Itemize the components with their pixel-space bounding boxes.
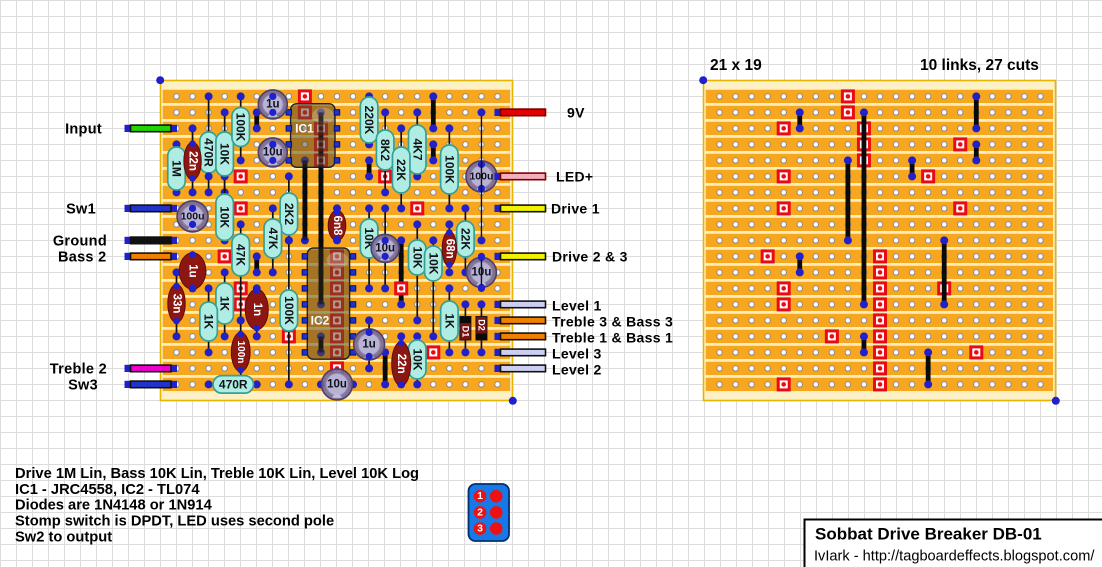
svg-text:22n: 22n: [395, 354, 407, 374]
svg-text:10u: 10u: [375, 242, 395, 254]
svg-text:IC2: IC2: [311, 314, 330, 328]
svg-text:LED+: LED+: [556, 168, 593, 184]
svg-text:D1: D1: [460, 326, 470, 338]
svg-text:1n: 1n: [251, 303, 263, 316]
svg-text:4K7: 4K7: [410, 138, 424, 160]
svg-text:10u: 10u: [263, 146, 283, 158]
svg-text:2: 2: [477, 506, 483, 518]
svg-text:Sw3: Sw3: [68, 377, 98, 393]
svg-text:22n: 22n: [187, 151, 199, 171]
svg-text:Ground: Ground: [53, 233, 107, 249]
svg-text:Sw1: Sw1: [66, 201, 96, 217]
svg-text:100K: 100K: [282, 296, 296, 325]
svg-text:Input: Input: [65, 121, 102, 137]
svg-text:33n: 33n: [171, 294, 183, 314]
svg-text:D2: D2: [476, 319, 486, 331]
svg-text:1u: 1u: [187, 264, 199, 277]
svg-text:Drive 1: Drive 1: [551, 200, 600, 216]
svg-text:Sw2 to output: Sw2 to output: [15, 529, 112, 545]
svg-text:10K: 10K: [410, 246, 424, 268]
svg-text:100K: 100K: [442, 155, 456, 184]
svg-text:6n8: 6n8: [331, 216, 343, 236]
svg-text:68n: 68n: [443, 239, 455, 259]
svg-text:220K: 220K: [362, 106, 376, 135]
svg-text:Treble 3 & Bass 3: Treble 3 & Bass 3: [552, 313, 673, 329]
svg-text:470R: 470R: [219, 377, 248, 391]
svg-text:IC1 - JRC4558, IC2 - TL074: IC1 - JRC4558, IC2 - TL074: [15, 482, 200, 498]
svg-text:Stomp switch is DPDT, LED uses: Stomp switch is DPDT, LED uses second po…: [15, 513, 334, 529]
svg-text:3: 3: [477, 523, 483, 535]
svg-text:22K: 22K: [458, 228, 472, 250]
svg-text:10u: 10u: [327, 378, 347, 390]
svg-text:9V: 9V: [567, 104, 585, 120]
svg-text:1u: 1u: [362, 338, 375, 350]
svg-text:470R: 470R: [202, 138, 216, 167]
svg-text:10K: 10K: [410, 348, 424, 370]
svg-text:10K: 10K: [218, 143, 232, 165]
svg-text:1u: 1u: [266, 98, 279, 110]
svg-text:Treble 2: Treble 2: [50, 361, 107, 377]
svg-text:10K: 10K: [426, 252, 440, 274]
svg-text:100K: 100K: [234, 113, 248, 142]
svg-text:Level 3: Level 3: [552, 345, 602, 361]
svg-text:Drive 2 & 3: Drive 2 & 3: [552, 248, 628, 264]
svg-text:1: 1: [477, 490, 483, 502]
svg-text:47K: 47K: [266, 227, 280, 249]
svg-text:8K2: 8K2: [378, 139, 392, 161]
svg-text:22K: 22K: [394, 159, 408, 181]
svg-text:47K: 47K: [234, 244, 248, 266]
svg-text:Level 1: Level 1: [552, 297, 602, 313]
svg-text:1K: 1K: [218, 296, 232, 312]
svg-text:Treble 1 & Bass 1: Treble 1 & Bass 1: [552, 329, 673, 345]
svg-text:IvIark - http://tagboardeffect: IvIark - http://tagboardeffects.blogspot…: [814, 549, 1095, 565]
svg-text:2K2: 2K2: [282, 203, 296, 225]
svg-text:10K: 10K: [218, 206, 232, 228]
svg-text:Level 2: Level 2: [552, 361, 602, 377]
svg-text:21 x 19: 21 x 19: [710, 57, 762, 74]
svg-text:IC1: IC1: [295, 122, 314, 136]
svg-text:100u: 100u: [181, 210, 205, 222]
svg-text:Diodes are 1N4148 or 1N914: Diodes are 1N4148 or 1N914: [15, 498, 213, 514]
svg-text:Bass 2: Bass 2: [58, 249, 107, 265]
svg-text:100n: 100n: [235, 341, 246, 364]
svg-text:10 links, 27 cuts: 10 links, 27 cuts: [920, 57, 1039, 74]
svg-text:Sobbat Drive Breaker DB-01: Sobbat Drive Breaker DB-01: [815, 525, 1042, 544]
svg-text:1K: 1K: [202, 314, 216, 330]
svg-text:Drive 1M Lin, Bass 10K Lin, Tr: Drive 1M Lin, Bass 10K Lin, Treble 10K L…: [15, 466, 419, 482]
svg-text:1K: 1K: [442, 313, 456, 329]
svg-text:1M: 1M: [170, 160, 184, 177]
